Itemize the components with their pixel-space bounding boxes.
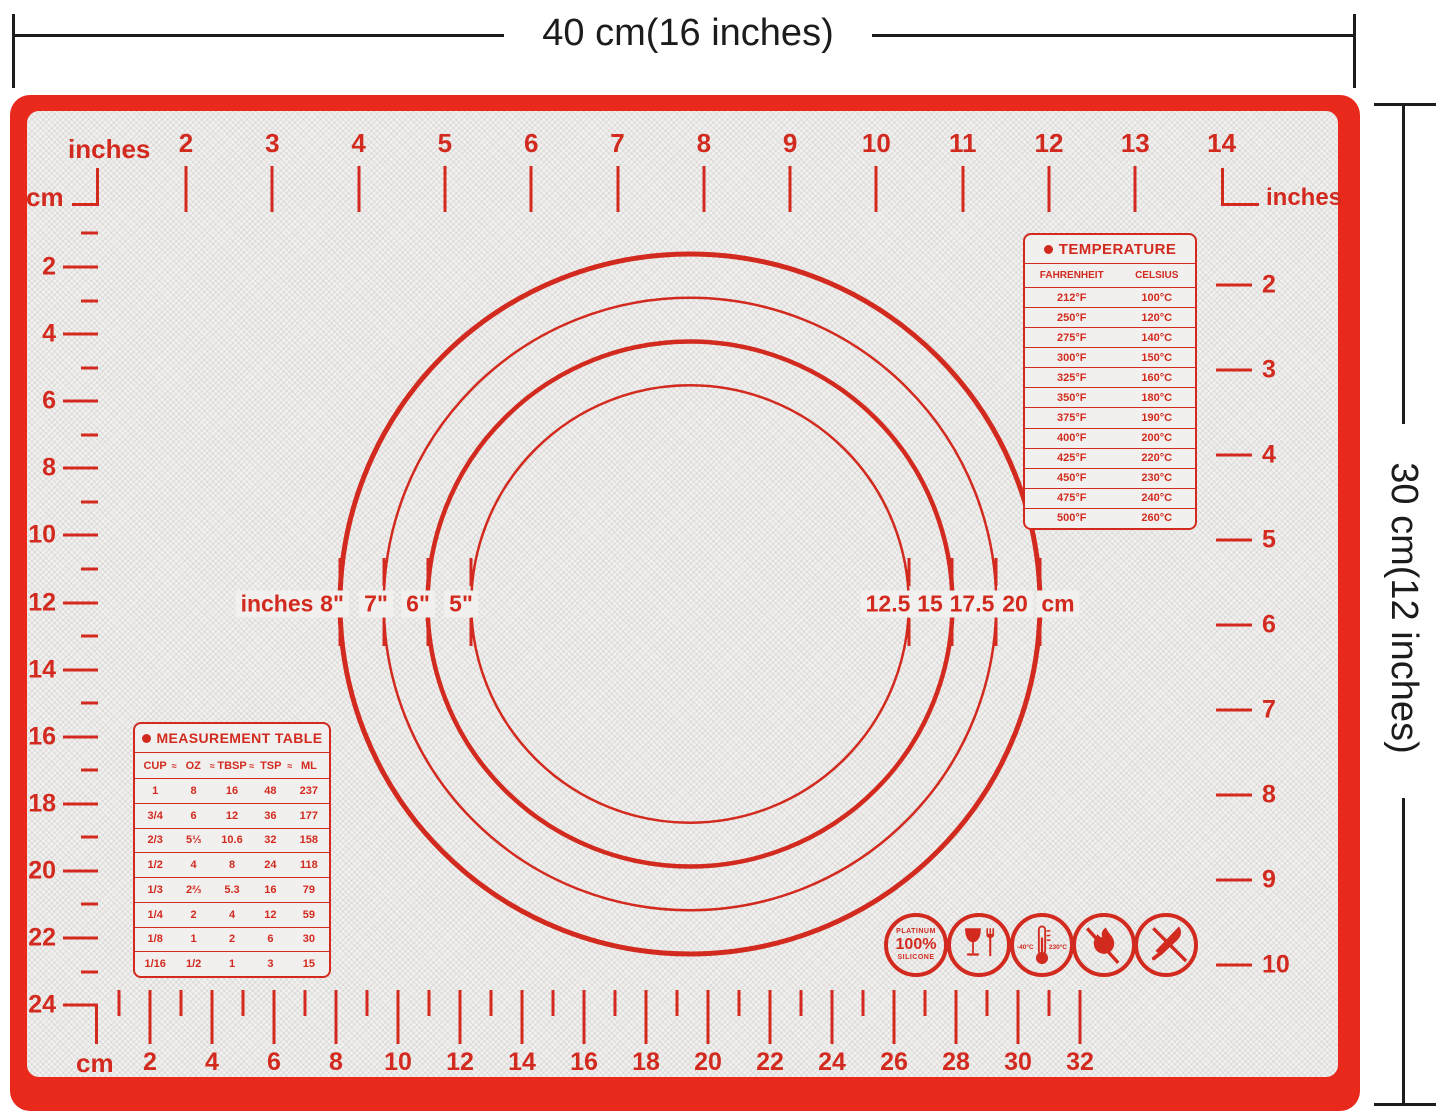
celsius-value: 190°C	[1119, 412, 1196, 424]
temperature-table-row: 475°F240°C	[1025, 488, 1195, 508]
temperature-table-row: 325°F160°C	[1025, 367, 1195, 387]
circle-equator-tick	[427, 558, 430, 586]
bottom-ruler-major-tick	[583, 990, 586, 1044]
top-right-corner-mark	[1221, 168, 1259, 206]
celsius-value: 180°C	[1119, 392, 1196, 404]
fahrenheit-value: 350°F	[1025, 392, 1119, 404]
measurement-value: 12	[256, 909, 284, 921]
right-ruler-unit-label: inches	[1266, 186, 1342, 210]
bottom-ruler-minor-tick	[862, 990, 865, 1016]
measurement-value: 4	[218, 909, 246, 921]
top-ruler-number: 4	[351, 130, 365, 156]
top-ruler-number: 3	[265, 130, 279, 156]
left-ruler-minor-tick	[81, 567, 98, 570]
wine-glass-fork-glyph	[953, 919, 1005, 971]
top-ruler-number: 11	[949, 130, 977, 156]
left-ruler-number: 12	[24, 590, 56, 615]
left-ruler-number: 20	[24, 858, 56, 883]
right-ruler-tick	[1216, 964, 1252, 967]
right-ruler-number: 4	[1262, 443, 1276, 468]
top-ruler-number: 5	[438, 130, 452, 156]
left-ruler-minor-tick	[81, 635, 98, 638]
temperature-table-row: 375°F190°C	[1025, 407, 1195, 427]
measurement-value: 4	[179, 859, 207, 871]
measurement-table-row: 2/35⅓10.632158	[135, 828, 329, 853]
measurement-table-row: 1/4241259	[135, 902, 329, 927]
circle-equator-tick	[951, 558, 954, 586]
temperature-table-title-text: TEMPERATURE	[1059, 241, 1176, 258]
left-ruler-major-tick	[63, 266, 98, 269]
top-ruler-tick	[702, 166, 705, 212]
bottom-ruler-number: 26	[880, 1050, 908, 1075]
celsius-value: 200°C	[1119, 432, 1196, 444]
bottom-ruler-minor-tick	[924, 990, 927, 1016]
measurement-value: 2⅔	[179, 884, 207, 896]
measurement-table-header: CUP≈OZ≈TBSP≈TSP≈ML	[135, 752, 329, 778]
measurement-value: 3	[256, 958, 284, 970]
temperature-table-row: 500°F260°C	[1025, 508, 1195, 528]
food-safe-icon	[947, 913, 1011, 977]
left-ruler-number: 16	[24, 724, 56, 749]
measurement-value: 1	[179, 933, 207, 945]
fahrenheit-value: 300°F	[1025, 352, 1119, 364]
bottom-ruler-major-tick	[335, 990, 338, 1044]
circle-inch-label: 8"	[315, 591, 349, 618]
measurement-column-header: CUP	[141, 760, 169, 772]
celsius-value: 140°C	[1119, 332, 1196, 344]
badge-100-percent-text: 100%	[896, 936, 937, 954]
left-ruler-minor-tick	[81, 836, 98, 839]
right-ruler-tick	[1216, 794, 1252, 797]
circle-cm-label: 20	[997, 591, 1033, 618]
measurement-value: 177	[295, 810, 323, 822]
top-ruler-tick	[875, 166, 878, 212]
right-ruler-tick	[1216, 284, 1252, 287]
measurement-value: 32	[256, 834, 284, 846]
measurement-value: 118	[295, 859, 323, 871]
right-ruler-number: 2	[1262, 273, 1276, 298]
measurement-table-title: MEASUREMENT TABLE	[135, 724, 329, 752]
temperature-range-icon: -40°C 230°C	[1010, 913, 1074, 977]
circle-equator-tick	[339, 558, 342, 586]
fahrenheit-value: 400°F	[1025, 432, 1119, 444]
circle-left-unit-label: inches	[236, 591, 319, 618]
circle-equator-tick	[995, 618, 998, 646]
temp-range-max-text: 230°C	[1049, 945, 1067, 952]
celsius-value: 100°C	[1119, 292, 1196, 304]
bottom-ruler-minor-tick	[1048, 990, 1051, 1016]
temperature-table-rows: 212°F100°C250°F120°C275°F140°C300°F150°C…	[1025, 287, 1195, 528]
bottom-ruler-major-tick	[273, 990, 276, 1044]
left-ruler-number: 24	[24, 993, 56, 1018]
temperature-table-row: 300°F150°C	[1025, 347, 1195, 367]
badge-silicone-text: SILICONE	[897, 954, 934, 962]
top-ruler-number: 14	[1207, 130, 1236, 156]
bottom-ruler-major-tick	[397, 990, 400, 1044]
bottom-ruler-minor-tick	[676, 990, 679, 1016]
bottom-ruler-number: 14	[508, 1050, 536, 1075]
no-cutting-icon	[1134, 913, 1198, 977]
circle-equator-tick	[339, 618, 342, 646]
bottom-ruler-major-tick	[1079, 990, 1082, 1044]
measurement-value: 30	[295, 933, 323, 945]
circle-cm-label: 17.5	[945, 591, 1000, 618]
bottom-ruler-minor-tick	[800, 990, 803, 1016]
left-ruler-minor-tick	[81, 366, 98, 369]
measurement-column-header: TBSP	[217, 760, 246, 772]
no-open-flame-icon	[1072, 913, 1136, 977]
bottom-ruler-number: 16	[570, 1050, 598, 1075]
bottom-ruler-number: 4	[205, 1050, 219, 1075]
fahrenheit-value: 450°F	[1025, 472, 1119, 484]
measurement-column-header: ML	[295, 760, 323, 772]
platinum-silicone-badge-icon: PLATINUM 100% SILICONE	[884, 913, 948, 977]
circle-equator-tick	[470, 558, 473, 586]
temperature-table-row: 350°F180°C	[1025, 387, 1195, 407]
left-ruler-major-tick	[63, 534, 98, 537]
circle-equator-tick	[908, 618, 911, 646]
left-ruler-minor-tick	[81, 769, 98, 772]
bottom-ruler-minor-tick	[428, 990, 431, 1016]
measurement-value: 1	[218, 958, 246, 970]
measurement-value: 15	[295, 958, 323, 970]
bottom-ruler-number: 8	[329, 1050, 343, 1075]
measurement-value: 1	[141, 785, 169, 797]
measurement-value: 2	[218, 933, 246, 945]
left-ruler-minor-tick	[81, 903, 98, 906]
top-ruler-tick	[616, 166, 619, 212]
approx-symbol: ≈	[285, 761, 295, 771]
bottom-ruler-minor-tick	[614, 990, 617, 1016]
top-ruler-tick	[789, 166, 792, 212]
circle-inch-label: 7"	[359, 591, 393, 618]
measurement-table-title-text: MEASUREMENT TABLE	[157, 730, 323, 746]
measurement-value: 5.3	[218, 884, 246, 896]
bottom-ruler-minor-tick	[738, 990, 741, 1016]
measurement-value: 2	[179, 909, 207, 921]
celsius-column-header: CELSIUS	[1119, 270, 1196, 281]
top-ruler-number: 12	[1035, 130, 1064, 156]
left-ruler-major-tick	[63, 333, 98, 336]
measurement-table-rows: 1816482373/4612361772/35⅓10.6321581/2482…	[135, 778, 329, 976]
bottom-ruler-number: 32	[1066, 1050, 1094, 1075]
measurement-value: 8	[218, 859, 246, 871]
right-ruler-number: 6	[1262, 613, 1276, 638]
bottom-ruler-minor-tick	[366, 990, 369, 1016]
left-ruler-minor-tick	[81, 299, 98, 302]
measurement-value: 158	[295, 834, 323, 846]
measurement-value: 16	[256, 884, 284, 896]
measurement-value: 24	[256, 859, 284, 871]
left-ruler-unit-label: cm	[26, 184, 64, 210]
circle-equator-tick	[427, 618, 430, 646]
measurement-value: 1/8	[141, 933, 169, 945]
top-ruler-tick	[530, 166, 533, 212]
bottom-ruler-major-tick	[707, 990, 710, 1044]
left-ruler-major-tick	[63, 735, 98, 738]
right-ruler-number: 7	[1262, 698, 1276, 723]
fahrenheit-value: 250°F	[1025, 312, 1119, 324]
measurement-value: 6	[179, 810, 207, 822]
fahrenheit-value: 325°F	[1025, 372, 1119, 384]
measurement-value: 8	[179, 785, 207, 797]
circle-equator-tick	[1039, 558, 1042, 586]
top-ruler-number: 10	[862, 130, 891, 156]
right-ruler-tick	[1216, 369, 1252, 372]
bottom-ruler-major-tick	[769, 990, 772, 1044]
measurement-value: 1/3	[141, 884, 169, 896]
measurement-value: 6	[256, 933, 284, 945]
measurement-value: 1/4	[141, 909, 169, 921]
right-ruler-tick	[1216, 624, 1252, 627]
measurement-value: 59	[295, 909, 323, 921]
measurement-value: 5⅓	[179, 834, 207, 846]
right-ruler-tick	[1216, 879, 1252, 882]
circle-equator-tick	[908, 558, 911, 586]
badge-platinum-text: PLATINUM	[896, 928, 936, 936]
fahrenheit-column-header: FAHRENHEIT	[1025, 270, 1119, 281]
temperature-table-row: 450°F230°C	[1025, 468, 1195, 488]
temperature-table-row: 425°F220°C	[1025, 448, 1195, 468]
bottom-ruler-major-tick	[459, 990, 462, 1044]
product-image: 40 cm(16 inches) 30 cm(12 inches) inches…	[0, 0, 1445, 1115]
measurement-table-row: 1/24824118	[135, 852, 329, 877]
mat-print-layer: inches cm inches 234567891011121314 2468…	[0, 0, 1445, 1115]
measurement-table-row: 1/812630	[135, 927, 329, 952]
approx-symbol: ≈	[247, 761, 257, 771]
bottom-ruler-major-tick	[893, 990, 896, 1044]
right-ruler-number: 5	[1262, 528, 1276, 553]
fahrenheit-value: 212°F	[1025, 292, 1119, 304]
left-ruler-major-tick	[63, 937, 98, 940]
right-ruler-number: 8	[1262, 783, 1276, 808]
left-ruler-major-tick	[63, 400, 98, 403]
bottom-ruler-number: 18	[632, 1050, 660, 1075]
top-ruler-number: 13	[1121, 130, 1150, 156]
right-ruler-tick	[1216, 454, 1252, 457]
temp-range-min-text: -40°C	[1017, 945, 1034, 952]
top-ruler-number: 2	[179, 130, 193, 156]
top-ruler-tick	[1134, 166, 1137, 212]
left-ruler-minor-tick	[81, 702, 98, 705]
bottom-ruler-major-tick	[149, 990, 152, 1044]
left-ruler-minor-tick	[81, 970, 98, 973]
measurement-value: 2/3	[141, 834, 169, 846]
measurement-value: 1/2	[179, 958, 207, 970]
temperature-table-row: 250°F120°C	[1025, 307, 1195, 327]
top-ruler-number: 9	[783, 130, 797, 156]
bottom-ruler-number: 2	[143, 1050, 157, 1075]
top-ruler-unit-label: inches	[68, 136, 150, 162]
top-ruler-number: 8	[697, 130, 711, 156]
left-ruler-number: 6	[24, 389, 56, 414]
right-ruler-number: 9	[1262, 868, 1276, 893]
left-ruler-major-tick	[63, 668, 98, 671]
bullet-dot-icon	[142, 734, 151, 743]
celsius-value: 230°C	[1119, 472, 1196, 484]
top-ruler-tick	[443, 166, 446, 212]
measurement-value: 48	[256, 785, 284, 797]
circle-right-unit-label: cm	[1036, 591, 1079, 618]
circle-equator-tick	[1039, 618, 1042, 646]
left-ruler-major-tick	[63, 869, 98, 872]
bottom-ruler-major-tick	[831, 990, 834, 1044]
right-ruler-number: 3	[1262, 358, 1276, 383]
right-ruler-tick	[1216, 539, 1252, 542]
measurement-value: 237	[295, 785, 323, 797]
bottom-ruler-number: 20	[694, 1050, 722, 1075]
fahrenheit-value: 275°F	[1025, 332, 1119, 344]
circle-equator-tick	[951, 618, 954, 646]
left-ruler-minor-tick	[81, 500, 98, 503]
measurement-value: 1/16	[141, 958, 169, 970]
bottom-ruler-number: 22	[756, 1050, 784, 1075]
bottom-ruler-major-tick	[521, 990, 524, 1044]
circle-cm-label: 12.5	[861, 591, 916, 618]
measurement-value: 3/4	[141, 810, 169, 822]
celsius-value: 220°C	[1119, 452, 1196, 464]
fahrenheit-value: 425°F	[1025, 452, 1119, 464]
bottom-ruler-minor-tick	[552, 990, 555, 1016]
left-ruler-number: 8	[24, 456, 56, 481]
bottom-ruler-number: 28	[942, 1050, 970, 1075]
measurement-value: 16	[218, 785, 246, 797]
left-ruler-number: 22	[24, 926, 56, 951]
measurement-table-row: 3/461236177	[135, 803, 329, 828]
measurement-column-header: TSP	[257, 760, 285, 772]
top-ruler-tick	[1048, 166, 1051, 212]
celsius-value: 160°C	[1119, 372, 1196, 384]
circle-equator-tick	[383, 618, 386, 646]
top-ruler-tick	[185, 166, 188, 212]
circle-inch-label: 5"	[444, 591, 478, 618]
left-ruler-minor-tick	[81, 433, 98, 436]
celsius-value: 240°C	[1119, 492, 1196, 504]
top-ruler-tick	[961, 166, 964, 212]
measurement-value: 36	[256, 810, 284, 822]
circle-equator-tick	[995, 558, 998, 586]
circle-inch-label: 6"	[401, 591, 435, 618]
measurement-table-row: 1/32⅔5.31679	[135, 877, 329, 902]
bottom-ruler-major-tick	[955, 990, 958, 1044]
top-ruler-tick	[271, 166, 274, 212]
measurement-value: 10.6	[218, 834, 246, 846]
left-ruler-major-tick	[63, 802, 98, 805]
temperature-table-row: 212°F100°C	[1025, 287, 1195, 307]
measurement-value: 79	[295, 884, 323, 896]
approx-symbol: ≈	[169, 761, 179, 771]
left-ruler-number: 18	[24, 791, 56, 816]
bottom-ruler-minor-tick	[118, 990, 121, 1016]
bottom-ruler-number: 30	[1004, 1050, 1032, 1075]
circle-cm-label: 15	[912, 591, 948, 618]
circle-guide-12.5cm	[471, 385, 909, 823]
right-ruler-number: 10	[1262, 953, 1290, 978]
bottom-ruler-minor-tick	[304, 990, 307, 1016]
celsius-value: 150°C	[1119, 352, 1196, 364]
flame-glyph	[1078, 919, 1130, 971]
fahrenheit-value: 475°F	[1025, 492, 1119, 504]
measurement-table-row: 1/161/21315	[135, 951, 329, 976]
left-ruler-major-tick	[63, 601, 98, 604]
left-ruler-number: 4	[24, 322, 56, 347]
bottom-ruler-minor-tick	[986, 990, 989, 1016]
left-ruler-major-tick	[63, 467, 98, 470]
temperature-table: TEMPERATURE FAHRENHEIT CELSIUS 212°F100°…	[1023, 233, 1197, 530]
measurement-value: 12	[218, 810, 246, 822]
measurement-table-row: 181648237	[135, 778, 329, 803]
measurement-value: 1/2	[141, 859, 169, 871]
top-ruler-number: 6	[524, 130, 538, 156]
fahrenheit-value: 375°F	[1025, 412, 1119, 424]
top-ruler-number: 7	[610, 130, 624, 156]
measurement-column-header: OZ	[179, 760, 207, 772]
right-ruler-tick	[1216, 709, 1252, 712]
circle-equator-tick	[383, 558, 386, 586]
bottom-ruler-unit-label: cm	[76, 1050, 114, 1076]
top-ruler-tick	[357, 166, 360, 212]
temperature-table-title: TEMPERATURE	[1025, 235, 1195, 263]
approx-symbol: ≈	[207, 761, 217, 771]
celsius-value: 120°C	[1119, 312, 1196, 324]
bottom-ruler-number: 10	[384, 1050, 412, 1075]
temperature-table-header: FAHRENHEIT CELSIUS	[1025, 263, 1195, 287]
bottom-ruler-major-tick	[1017, 990, 1020, 1044]
fahrenheit-value: 500°F	[1025, 512, 1119, 524]
left-ruler-major-tick	[63, 1004, 98, 1007]
bottom-left-corner-mark	[95, 1006, 98, 1044]
bottom-ruler-minor-tick	[242, 990, 245, 1016]
top-left-corner-mark	[72, 168, 99, 206]
temperature-table-row: 400°F200°C	[1025, 428, 1195, 448]
bottom-ruler-minor-tick	[490, 990, 493, 1016]
measurement-table: MEASUREMENT TABLE CUP≈OZ≈TBSP≈TSP≈ML 181…	[133, 722, 331, 978]
knife-crossed-glyph	[1140, 919, 1192, 971]
bottom-ruler-number: 6	[267, 1050, 281, 1075]
bottom-ruler-number: 12	[446, 1050, 474, 1075]
celsius-value: 260°C	[1119, 512, 1196, 524]
left-ruler-number: 14	[24, 657, 56, 682]
bottom-ruler-major-tick	[211, 990, 214, 1044]
bottom-ruler-major-tick	[645, 990, 648, 1044]
temperature-table-row: 275°F140°C	[1025, 327, 1195, 347]
bottom-ruler-number: 24	[818, 1050, 846, 1075]
bottom-ruler-minor-tick	[180, 990, 183, 1016]
bullet-dot-icon	[1044, 245, 1053, 254]
left-ruler-minor-tick	[81, 232, 98, 235]
circle-equator-tick	[470, 618, 473, 646]
left-ruler-number: 10	[24, 523, 56, 548]
left-ruler-number: 2	[24, 255, 56, 280]
